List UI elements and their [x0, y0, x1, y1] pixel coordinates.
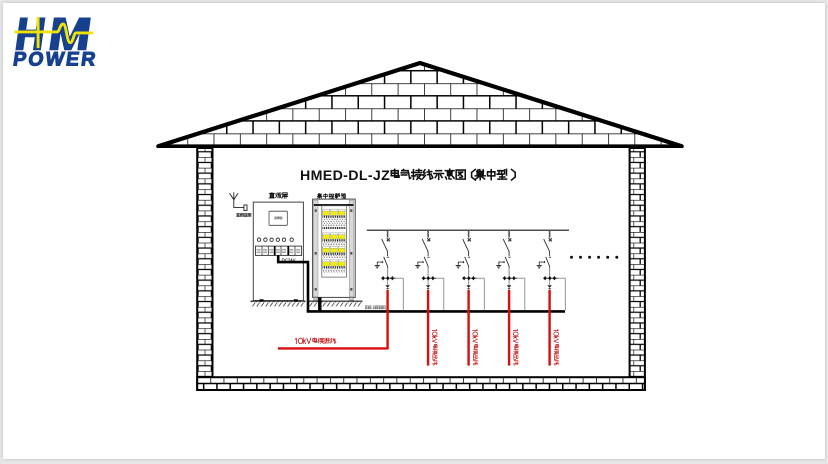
svg-text:POWER: POWER	[12, 49, 99, 71]
svg-text:HMED-DL-JZ: HMED-DL-JZ	[300, 168, 390, 184]
